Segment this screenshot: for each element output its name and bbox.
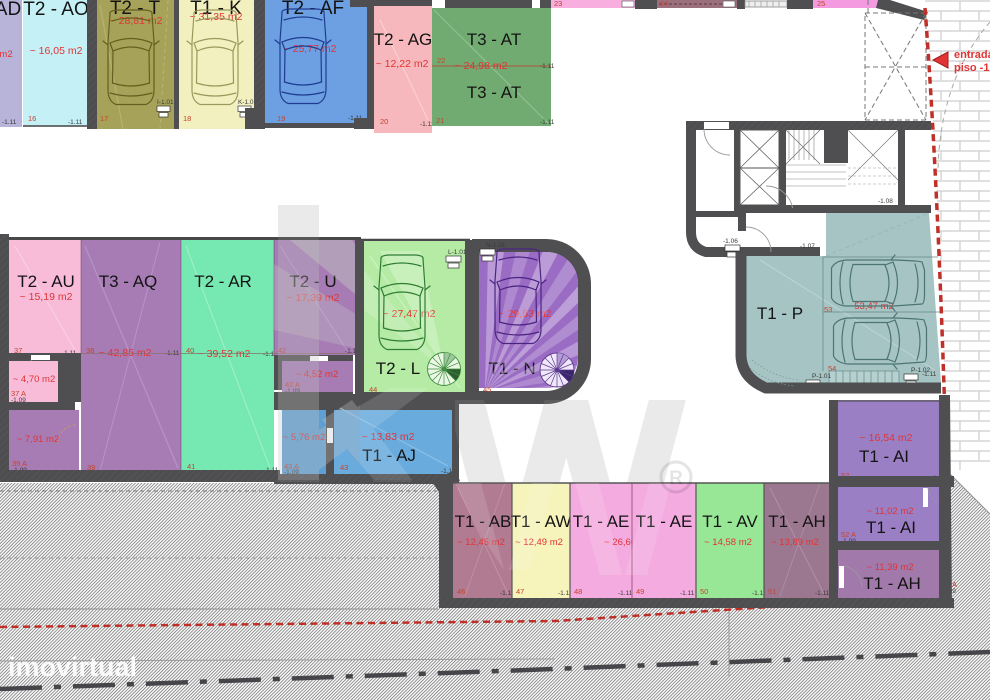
svg-text:T1 - AI: T1 - AI — [866, 518, 916, 537]
svg-text:~ 7,91 m2: ~ 7,91 m2 — [17, 434, 60, 445]
svg-text:I-1.01: I-1.01 — [157, 99, 174, 106]
svg-text:23: 23 — [554, 0, 562, 8]
svg-text:T2 - AO: T2 - AO — [23, 0, 88, 20]
svg-text:imovirtual: imovirtual — [8, 652, 137, 682]
svg-text:25: 25 — [817, 0, 825, 8]
svg-text:T2 - AR: T2 - AR — [194, 272, 252, 291]
svg-text:46: 46 — [457, 587, 465, 596]
svg-text:51: 51 — [768, 587, 776, 596]
svg-text:53: 53 — [824, 305, 832, 314]
svg-text:entrada: entrada — [954, 49, 990, 61]
svg-text:22: 22 — [437, 56, 445, 65]
svg-text:~ 16,54 m2: ~ 16,54 m2 — [860, 432, 913, 444]
svg-text:~ 39,52 m2: ~ 39,52 m2 — [198, 348, 251, 360]
svg-text:T1 - AV: T1 - AV — [702, 512, 758, 531]
svg-text:-1.09: -1.09 — [11, 397, 26, 404]
svg-text:~ 11,39 m2: ~ 11,39 m2 — [866, 562, 913, 573]
svg-text:21: 21 — [436, 116, 444, 125]
svg-text:-1.11: -1.11 — [815, 590, 830, 597]
svg-text:~ 12,22 m2: ~ 12,22 m2 — [376, 58, 429, 70]
svg-text:~ 42,85 m2: ~ 42,85 m2 — [99, 347, 152, 359]
svg-text:T3 - AT: T3 - AT — [467, 83, 521, 102]
svg-text:19: 19 — [277, 114, 285, 123]
svg-text:-1.11: -1.11 — [540, 119, 555, 126]
svg-text:16: 16 — [28, 114, 36, 123]
svg-text:L-1.01: L-1.01 — [448, 249, 467, 256]
svg-text:R: R — [669, 468, 683, 489]
svg-text:P-1.01: P-1.01 — [812, 373, 832, 380]
svg-text:-1.11: -1.11 — [680, 590, 695, 597]
svg-text:-1.08: -1.08 — [878, 198, 893, 205]
svg-text:~ 25,77 m2: ~ 25,77 m2 — [284, 43, 337, 55]
svg-text:-1.11: -1.11 — [540, 63, 555, 70]
svg-text:T1 - AH: T1 - AH — [768, 512, 826, 531]
svg-text:~ 11,02 m2: ~ 11,02 m2 — [866, 506, 913, 517]
svg-text:17: 17 — [100, 114, 108, 123]
svg-text:20: 20 — [380, 117, 388, 126]
svg-text:-1.11: -1.11 — [2, 119, 17, 126]
svg-text:T3 - AQ: T3 - AQ — [99, 272, 158, 291]
svg-text:T2 - AU: T2 - AU — [17, 272, 75, 291]
svg-text:~ 16,05 m2: ~ 16,05 m2 — [30, 45, 83, 57]
svg-text:AD: AD — [0, 0, 21, 20]
svg-text:T2 - L: T2 - L — [376, 359, 420, 378]
svg-text:T1 - AI: T1 - AI — [859, 447, 909, 466]
svg-text:-1.11: -1.11 — [68, 119, 83, 126]
svg-text:48: 48 — [574, 587, 582, 596]
svg-text:41: 41 — [187, 462, 195, 471]
svg-text:T1 - AH: T1 - AH — [863, 574, 921, 593]
svg-text:-1.07: -1.07 — [800, 243, 815, 250]
svg-text:-1.06: -1.06 — [723, 238, 738, 245]
svg-text:N-1.01: N-1.01 — [486, 242, 506, 249]
svg-text:-1.11: -1.11 — [618, 590, 633, 597]
svg-text:50: 50 — [700, 587, 708, 596]
svg-text:49: 49 — [636, 587, 644, 596]
svg-text:T1 - P: T1 - P — [757, 304, 803, 323]
svg-text:~ 24,98 m2: ~ 24,98 m2 — [455, 60, 508, 72]
svg-text:T3 - AT: T3 - AT — [467, 30, 521, 49]
svg-text:18: 18 — [183, 114, 191, 123]
svg-text:47: 47 — [516, 587, 524, 596]
svg-text:44: 44 — [369, 385, 377, 394]
svg-text:~ 15,19 m2: ~ 15,19 m2 — [20, 291, 73, 303]
svg-text:~ 28,81 m2: ~ 28,81 m2 — [110, 15, 163, 27]
svg-text:T2 - AG: T2 - AG — [374, 30, 433, 49]
svg-text:43: 43 — [340, 463, 348, 472]
svg-text:~ 4,70 m2: ~ 4,70 m2 — [13, 374, 56, 385]
svg-text:~ 13,89 m2: ~ 13,89 m2 — [771, 537, 819, 548]
svg-text:P-1.02: P-1.02 — [911, 367, 931, 374]
svg-text:24: 24 — [660, 0, 668, 8]
svg-text:m2: m2 — [0, 49, 13, 60]
svg-text:~ 31,35 m2: ~ 31,35 m2 — [190, 11, 243, 23]
svg-text:~ 14,58 m2: ~ 14,58 m2 — [704, 537, 752, 548]
svg-text:piso -1: piso -1 — [954, 62, 989, 74]
